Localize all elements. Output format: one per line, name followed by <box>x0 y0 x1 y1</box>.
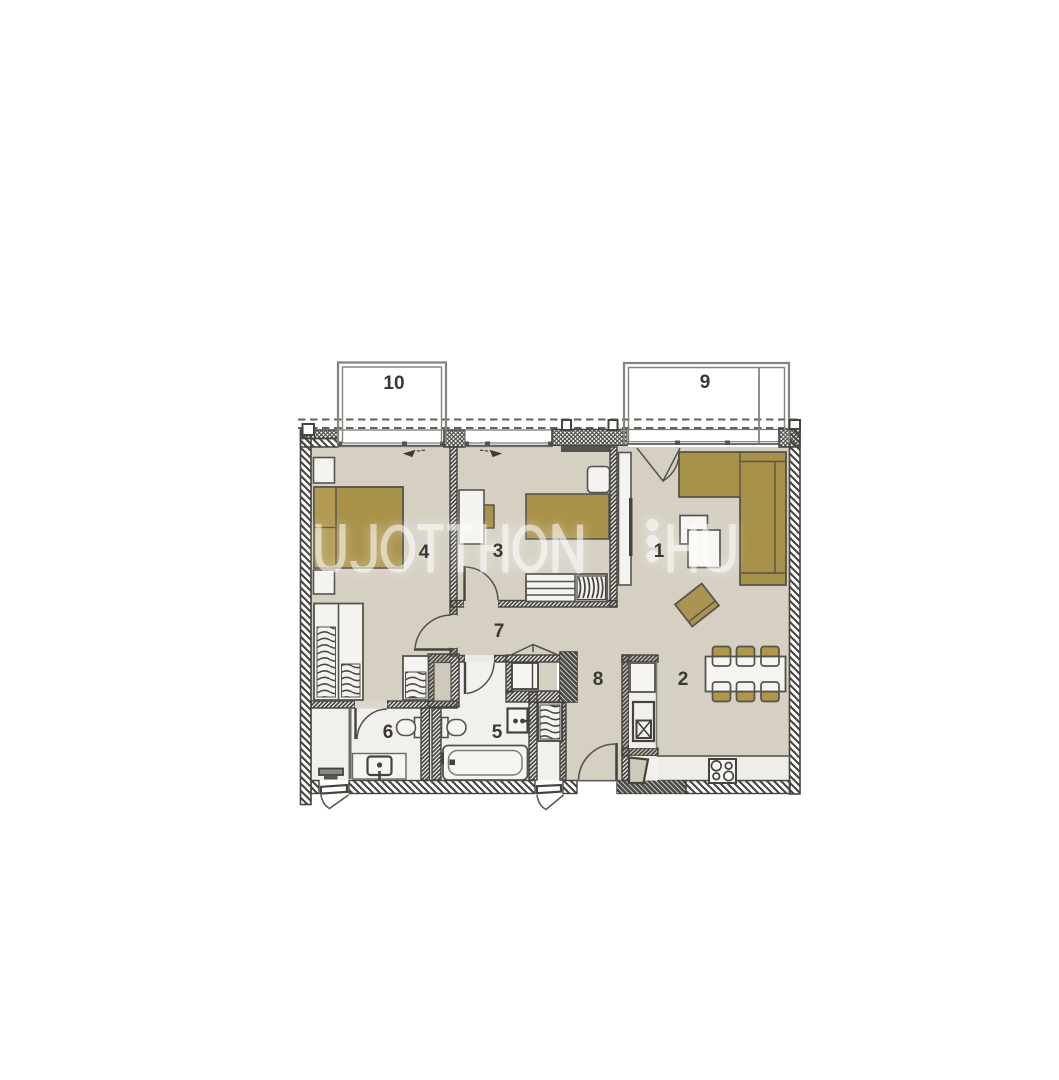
svg-text:5: 5 <box>492 722 503 743</box>
svg-text:6: 6 <box>383 722 394 743</box>
svg-text:7: 7 <box>494 621 505 642</box>
svg-text:10: 10 <box>383 373 404 394</box>
svg-text:2: 2 <box>678 669 689 690</box>
svg-text:4: 4 <box>419 542 430 563</box>
svg-text:3: 3 <box>493 541 504 562</box>
svg-text:8: 8 <box>593 669 604 690</box>
svg-text:1: 1 <box>654 541 665 562</box>
svg-text:9: 9 <box>700 372 711 393</box>
